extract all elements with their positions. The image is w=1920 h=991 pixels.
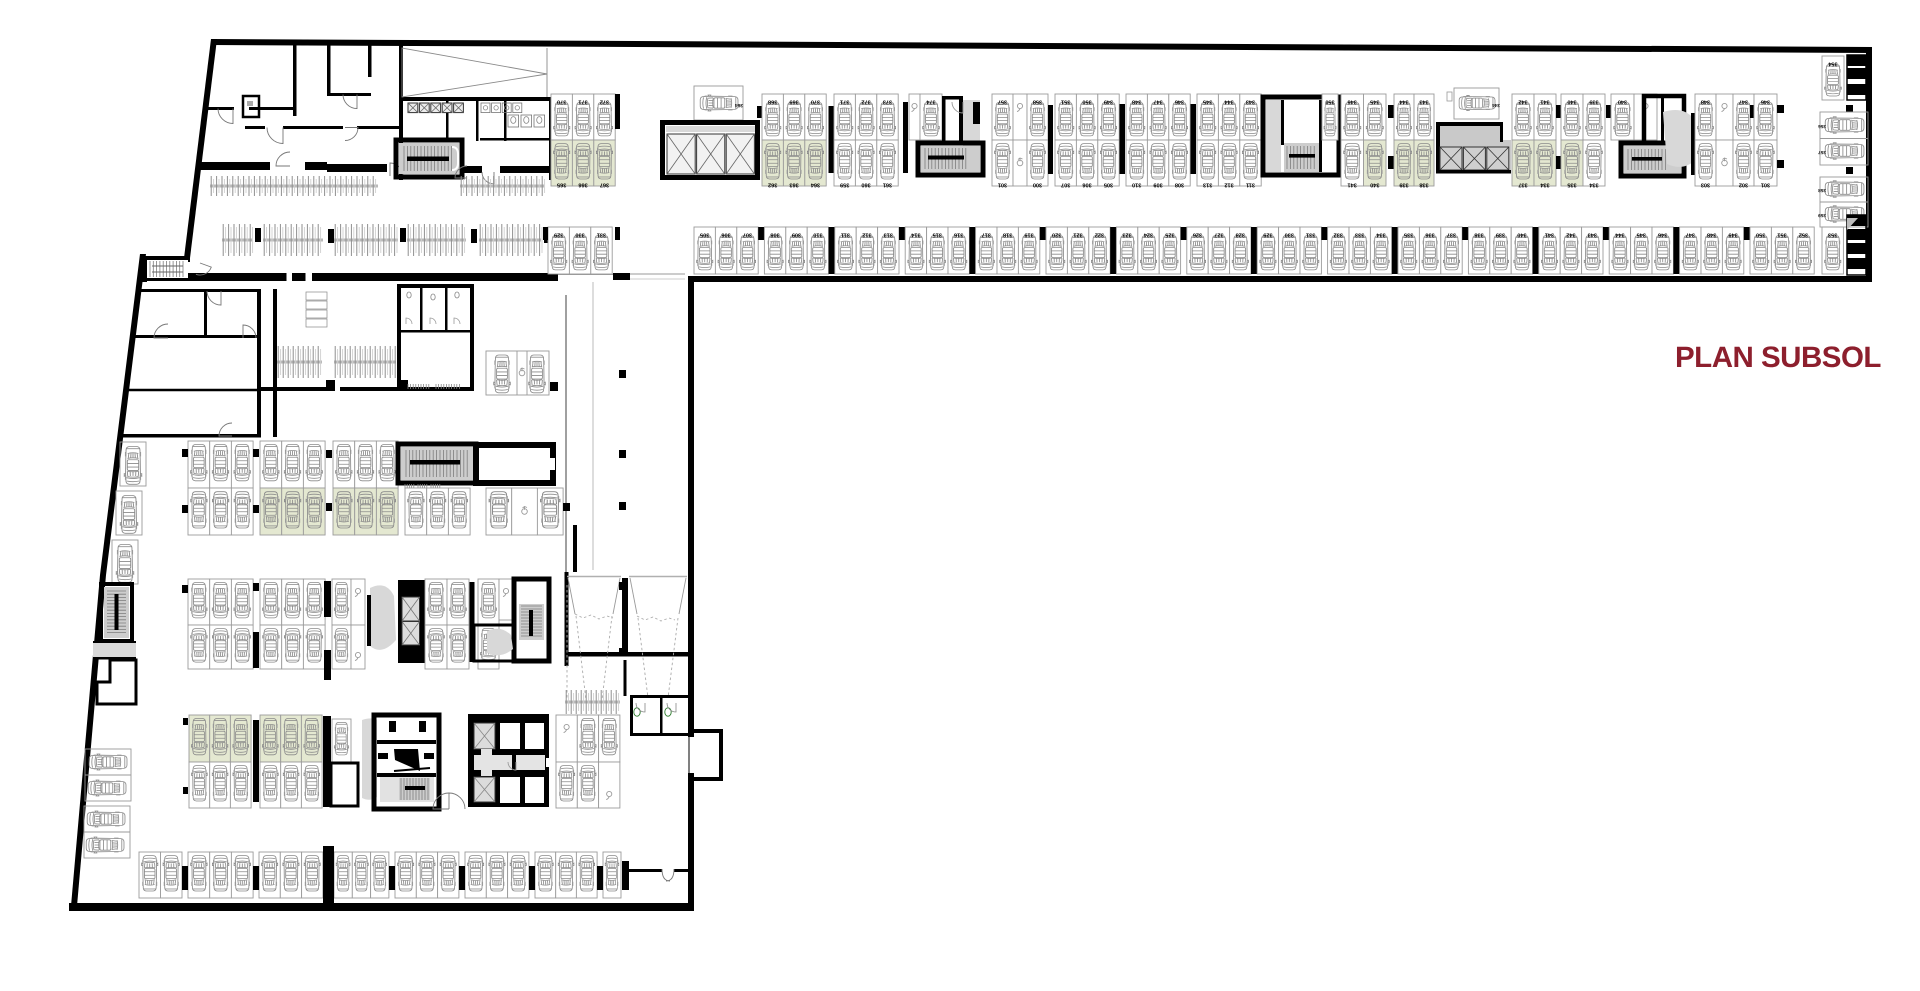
svg-text:303: 303 bbox=[1701, 181, 1710, 187]
svg-text:341: 341 bbox=[1348, 181, 1357, 187]
svg-text:341: 341 bbox=[1545, 232, 1554, 238]
svg-text:369: 369 bbox=[789, 99, 798, 105]
svg-text:302: 302 bbox=[1739, 181, 1748, 187]
svg-text:356: 356 bbox=[1818, 124, 1826, 129]
svg-text:311: 311 bbox=[1246, 181, 1255, 187]
svg-text:350: 350 bbox=[1082, 99, 1091, 105]
svg-text:307: 307 bbox=[743, 232, 752, 238]
svg-text:335: 335 bbox=[1567, 181, 1576, 187]
svg-text:357: 357 bbox=[1818, 150, 1826, 155]
svg-text:PLAN SUBSOL: PLAN SUBSOL bbox=[1675, 341, 1881, 374]
svg-text:330: 330 bbox=[575, 232, 584, 238]
svg-text:339: 339 bbox=[1589, 99, 1598, 105]
svg-text:311: 311 bbox=[841, 232, 850, 238]
svg-text:341: 341 bbox=[1540, 99, 1549, 105]
svg-text:354: 354 bbox=[1827, 61, 1837, 67]
svg-text:329: 329 bbox=[1263, 232, 1272, 238]
svg-text:370: 370 bbox=[557, 99, 566, 105]
svg-text:372: 372 bbox=[600, 99, 609, 105]
svg-text:344: 344 bbox=[1492, 103, 1500, 108]
svg-text:350: 350 bbox=[1325, 99, 1334, 105]
svg-text:334: 334 bbox=[1376, 232, 1386, 238]
svg-text:350: 350 bbox=[1756, 232, 1765, 238]
svg-text:340: 340 bbox=[1618, 99, 1627, 105]
svg-text:337: 337 bbox=[1447, 232, 1456, 238]
svg-text:340: 340 bbox=[1567, 99, 1576, 105]
svg-text:347: 347 bbox=[1739, 99, 1748, 105]
svg-text:336: 336 bbox=[1425, 232, 1434, 238]
svg-text:313: 313 bbox=[884, 232, 893, 238]
svg-text:361: 361 bbox=[883, 181, 892, 187]
svg-text:326: 326 bbox=[1193, 232, 1202, 238]
svg-text:371: 371 bbox=[840, 99, 849, 105]
svg-text:343: 343 bbox=[1419, 99, 1428, 105]
svg-text:345: 345 bbox=[1203, 99, 1212, 105]
svg-text:345: 345 bbox=[1370, 99, 1379, 105]
svg-text:306: 306 bbox=[1082, 181, 1091, 187]
svg-text:328: 328 bbox=[1236, 232, 1245, 238]
svg-text:319: 319 bbox=[1024, 232, 1033, 238]
svg-text:344: 344 bbox=[1398, 99, 1408, 105]
svg-text:308: 308 bbox=[1175, 181, 1184, 187]
svg-text:322: 322 bbox=[1095, 232, 1104, 238]
svg-text:344: 344 bbox=[1614, 232, 1624, 238]
svg-text:306: 306 bbox=[721, 232, 730, 238]
svg-text:374: 374 bbox=[925, 99, 935, 105]
svg-text:337: 337 bbox=[1518, 181, 1527, 187]
svg-text:318: 318 bbox=[1003, 232, 1012, 238]
svg-text:364: 364 bbox=[735, 102, 743, 108]
svg-text:332: 332 bbox=[1334, 232, 1343, 238]
svg-text:347: 347 bbox=[1686, 232, 1695, 238]
svg-text:348: 348 bbox=[1701, 99, 1710, 105]
svg-text:339: 339 bbox=[1399, 181, 1408, 187]
svg-text:362: 362 bbox=[768, 181, 777, 187]
svg-text:372: 372 bbox=[861, 99, 870, 105]
svg-text:334: 334 bbox=[1539, 181, 1549, 187]
svg-text:370: 370 bbox=[811, 99, 820, 105]
svg-text:352: 352 bbox=[1799, 232, 1808, 238]
svg-text:325: 325 bbox=[1165, 232, 1174, 238]
svg-text:340: 340 bbox=[1370, 181, 1379, 187]
svg-text:316: 316 bbox=[954, 232, 963, 238]
svg-text:373: 373 bbox=[883, 99, 892, 105]
svg-text:365: 365 bbox=[557, 181, 566, 187]
svg-text:359: 359 bbox=[1818, 213, 1826, 218]
svg-text:351: 351 bbox=[1061, 99, 1070, 105]
svg-text:366: 366 bbox=[578, 181, 587, 187]
svg-text:334: 334 bbox=[1588, 181, 1598, 187]
svg-text:317: 317 bbox=[982, 232, 991, 238]
svg-text:301: 301 bbox=[998, 181, 1007, 187]
svg-text:342: 342 bbox=[1518, 99, 1527, 105]
svg-text:338: 338 bbox=[1419, 181, 1428, 187]
svg-text:346: 346 bbox=[1175, 99, 1184, 105]
svg-text:331: 331 bbox=[1306, 232, 1315, 238]
svg-text:353: 353 bbox=[1828, 232, 1837, 238]
svg-text:330: 330 bbox=[1285, 232, 1294, 238]
svg-text:368: 368 bbox=[768, 99, 777, 105]
svg-text:313: 313 bbox=[1203, 181, 1212, 187]
svg-text:307: 307 bbox=[1061, 181, 1070, 187]
svg-text:320: 320 bbox=[1052, 232, 1061, 238]
svg-text:358: 358 bbox=[1818, 188, 1826, 193]
svg-text:346: 346 bbox=[1761, 99, 1770, 105]
svg-text:333: 333 bbox=[1355, 232, 1364, 238]
svg-text:340: 340 bbox=[1517, 232, 1526, 238]
svg-text:351: 351 bbox=[1777, 232, 1786, 238]
svg-text:308: 308 bbox=[770, 232, 779, 238]
svg-text:305: 305 bbox=[700, 232, 709, 238]
svg-text:309: 309 bbox=[1153, 181, 1162, 187]
svg-text:348: 348 bbox=[1132, 99, 1141, 105]
svg-text:310: 310 bbox=[813, 232, 822, 238]
svg-text:344: 344 bbox=[1224, 99, 1234, 105]
svg-text:300: 300 bbox=[1033, 181, 1042, 187]
svg-text:315: 315 bbox=[933, 232, 942, 238]
svg-text:346: 346 bbox=[1658, 232, 1667, 238]
svg-text:342: 342 bbox=[1566, 232, 1575, 238]
svg-text:314: 314 bbox=[910, 232, 920, 238]
svg-text:348: 348 bbox=[1707, 232, 1716, 238]
svg-text:312: 312 bbox=[862, 232, 871, 238]
svg-text:347: 347 bbox=[1153, 99, 1162, 105]
svg-text:349: 349 bbox=[1728, 232, 1737, 238]
svg-text:339: 339 bbox=[1496, 232, 1505, 238]
svg-text:323: 323 bbox=[1122, 232, 1131, 238]
svg-text:338: 338 bbox=[1474, 232, 1483, 238]
svg-text:335: 335 bbox=[1404, 232, 1413, 238]
svg-text:345: 345 bbox=[1637, 232, 1646, 238]
svg-text:346: 346 bbox=[1348, 99, 1357, 105]
svg-text:331: 331 bbox=[597, 232, 606, 238]
svg-text:312: 312 bbox=[1224, 181, 1233, 187]
svg-text:309: 309 bbox=[792, 232, 801, 238]
svg-text:329: 329 bbox=[554, 232, 563, 238]
svg-text:310: 310 bbox=[1132, 181, 1141, 187]
svg-text:358: 358 bbox=[1033, 99, 1042, 105]
svg-text:343: 343 bbox=[1246, 99, 1255, 105]
svg-text:321: 321 bbox=[1073, 232, 1082, 238]
svg-text:324: 324 bbox=[1143, 232, 1153, 238]
svg-text:305: 305 bbox=[1104, 181, 1113, 187]
svg-text:360: 360 bbox=[861, 181, 870, 187]
svg-text:363: 363 bbox=[789, 181, 798, 187]
svg-text:349: 349 bbox=[1104, 99, 1113, 105]
svg-text:327: 327 bbox=[1214, 232, 1223, 238]
svg-text:364: 364 bbox=[810, 181, 820, 187]
svg-text:301: 301 bbox=[1761, 181, 1770, 187]
svg-text:357: 357 bbox=[998, 99, 1007, 105]
svg-text:343: 343 bbox=[1588, 232, 1597, 238]
svg-text:367: 367 bbox=[600, 181, 609, 187]
svg-text:359: 359 bbox=[840, 181, 849, 187]
svg-text:371: 371 bbox=[578, 99, 587, 105]
